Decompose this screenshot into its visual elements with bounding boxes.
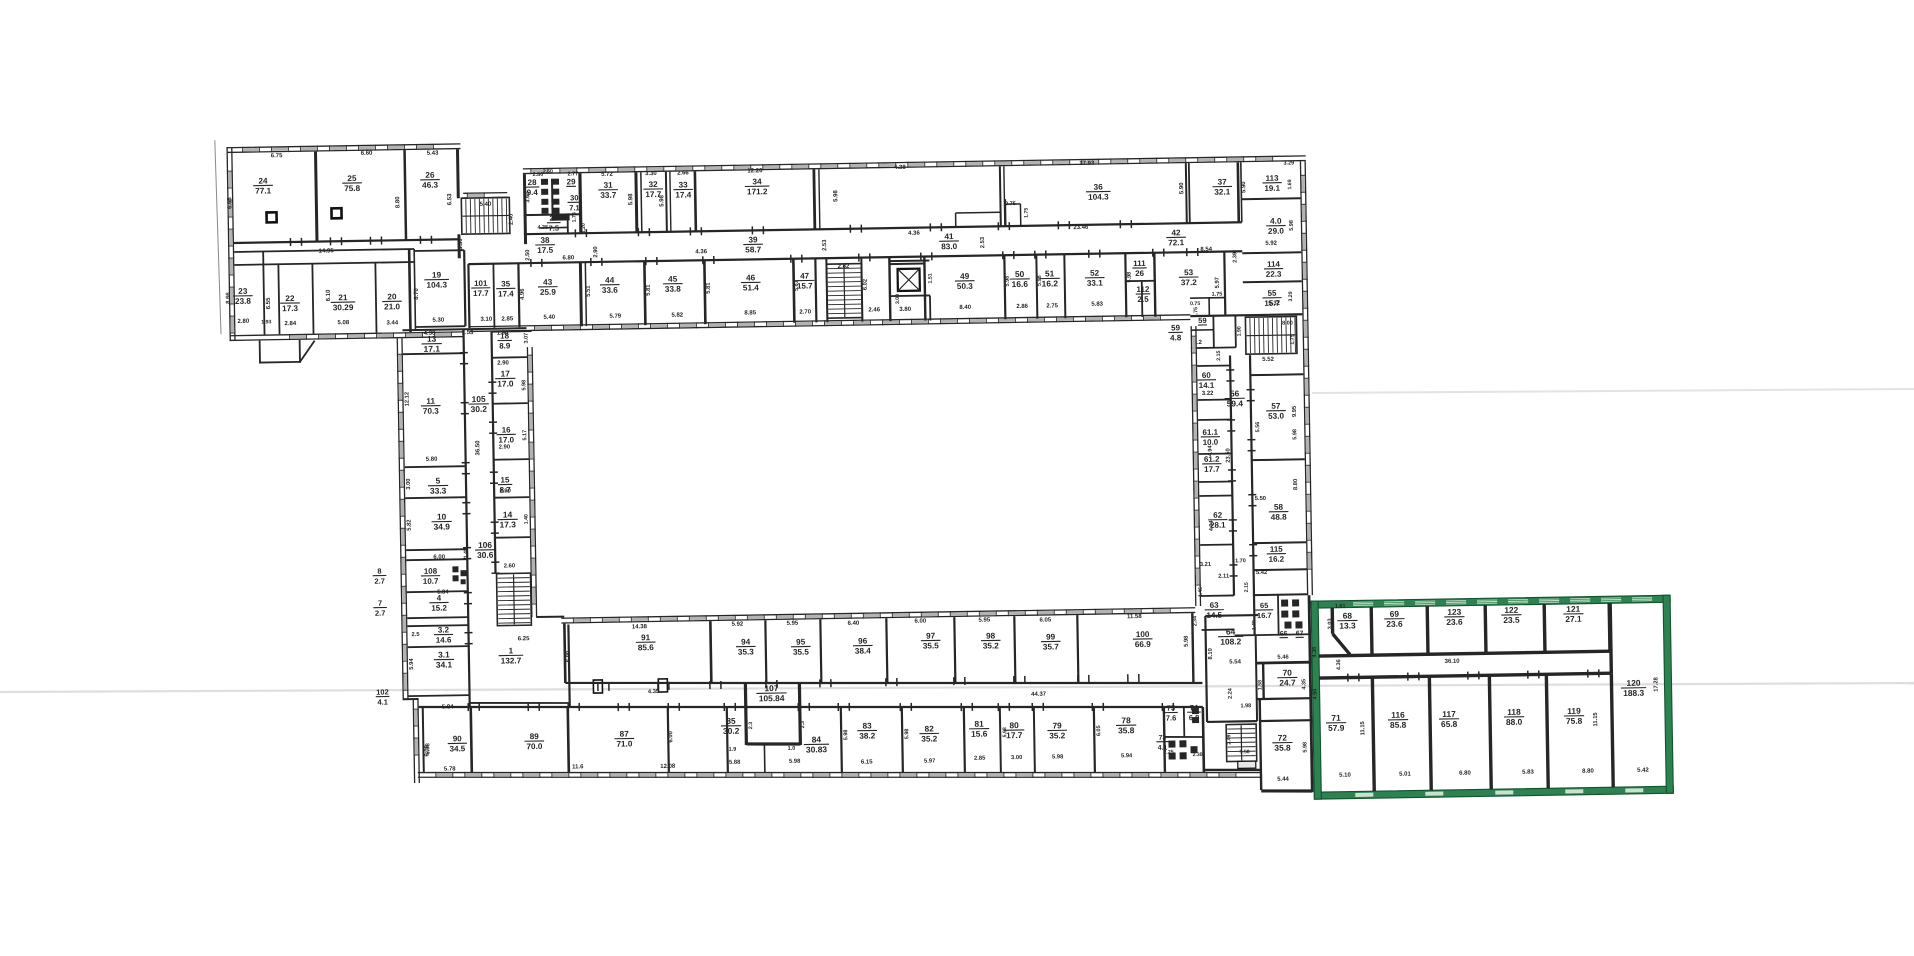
svg-text:85.8: 85.8 [1390, 720, 1407, 730]
svg-text:59: 59 [1198, 316, 1206, 325]
svg-text:5.92: 5.92 [732, 622, 744, 628]
svg-text:1.61: 1.61 [1335, 604, 1346, 610]
svg-text:2.5: 2.5 [1137, 295, 1149, 304]
svg-text:33.8: 33.8 [665, 285, 682, 294]
svg-text:2.90: 2.90 [593, 246, 599, 257]
svg-text:4.36: 4.36 [1312, 647, 1318, 658]
svg-text:4.36: 4.36 [908, 231, 920, 237]
svg-text:5.97: 5.97 [1215, 277, 1221, 288]
svg-text:3.00: 3.00 [895, 294, 901, 304]
svg-text:6.75: 6.75 [271, 153, 283, 159]
svg-text:17.1: 17.1 [424, 344, 441, 354]
svg-text:5.81: 5.81 [706, 282, 712, 294]
svg-text:188.3: 188.3 [1623, 688, 1644, 698]
svg-text:70.0: 70.0 [526, 742, 543, 751]
svg-text:30: 30 [570, 193, 578, 202]
svg-text:36.50: 36.50 [475, 440, 481, 456]
svg-text:30.83: 30.83 [806, 744, 827, 754]
svg-text:34: 34 [752, 177, 762, 186]
svg-text:4.94: 4.94 [1207, 444, 1213, 456]
svg-text:5.98: 5.98 [904, 728, 910, 739]
svg-text:33.3: 33.3 [430, 485, 447, 495]
svg-text:94: 94 [741, 637, 751, 646]
svg-text:98: 98 [986, 631, 996, 640]
svg-text:35.7: 35.7 [1043, 642, 1060, 651]
svg-text:8.80: 8.80 [1293, 479, 1299, 490]
svg-text:57: 57 [1271, 402, 1281, 411]
svg-text:5.40: 5.40 [543, 315, 555, 321]
svg-text:105.84: 105.84 [759, 693, 785, 703]
svg-text:5.42: 5.42 [1637, 768, 1649, 774]
svg-text:38.2: 38.2 [859, 731, 876, 740]
svg-text:23.5: 23.5 [1503, 615, 1520, 625]
svg-text:6.25: 6.25 [518, 636, 530, 642]
svg-text:83.0: 83.0 [941, 242, 958, 251]
svg-text:5.79: 5.79 [609, 314, 621, 320]
svg-text:17.7: 17.7 [473, 289, 489, 298]
svg-text:10.7: 10.7 [423, 577, 439, 586]
svg-text:2.11: 2.11 [1218, 574, 1230, 580]
svg-text:11.6: 11.6 [572, 764, 584, 770]
svg-text:17.3: 17.3 [282, 304, 299, 313]
svg-text:4.35: 4.35 [537, 225, 548, 231]
svg-text:5.10: 5.10 [1339, 773, 1351, 779]
svg-text:25.9: 25.9 [540, 288, 557, 297]
svg-text:96: 96 [858, 637, 868, 646]
svg-text:5.58: 5.58 [1239, 749, 1249, 755]
svg-text:23.6: 23.6 [1386, 619, 1403, 629]
svg-text:14.1: 14.1 [1199, 381, 1215, 390]
svg-text:5.90: 5.90 [1179, 182, 1185, 194]
svg-text:102: 102 [376, 687, 389, 696]
svg-text:8.70: 8.70 [414, 287, 420, 299]
svg-text:2.60: 2.60 [504, 563, 515, 569]
svg-text:104.3: 104.3 [1088, 192, 1109, 201]
svg-text:6.08: 6.08 [425, 742, 431, 754]
svg-text:2.90: 2.90 [499, 444, 510, 450]
svg-text:8.80: 8.80 [1582, 769, 1594, 775]
svg-text:171.2: 171.2 [747, 187, 768, 196]
svg-text:24.7: 24.7 [1279, 677, 1296, 687]
svg-text:2.53: 2.53 [822, 239, 828, 251]
svg-text:46.3: 46.3 [422, 181, 439, 190]
svg-text:2.30: 2.30 [1193, 752, 1203, 758]
svg-text:49: 49 [960, 272, 970, 281]
svg-text:3.22: 3.22 [1202, 391, 1214, 397]
svg-text:35.2: 35.2 [983, 641, 1000, 650]
svg-text:112: 112 [1136, 285, 1150, 294]
svg-text:29: 29 [567, 177, 577, 186]
svg-text:20: 20 [387, 292, 397, 301]
svg-text:4.94: 4.94 [1313, 688, 1319, 700]
svg-text:2.53: 2.53 [980, 236, 986, 248]
svg-text:5.40: 5.40 [480, 202, 492, 208]
svg-text:1: 1 [508, 646, 513, 655]
svg-text:13.3: 13.3 [1339, 620, 1356, 630]
svg-text:37.2: 37.2 [1181, 278, 1198, 287]
svg-text:17: 17 [500, 368, 510, 378]
svg-text:11.15: 11.15 [1360, 720, 1366, 735]
svg-text:71.0: 71.0 [616, 739, 633, 748]
svg-text:5.44: 5.44 [1277, 777, 1289, 783]
svg-text:8.10: 8.10 [1208, 648, 1214, 659]
svg-text:2.15: 2.15 [1244, 582, 1250, 592]
svg-text:132.7: 132.7 [501, 656, 522, 665]
svg-text:23.50: 23.50 [1226, 448, 1232, 463]
svg-text:3.29: 3.29 [1288, 291, 1294, 301]
svg-text:95: 95 [796, 638, 806, 647]
svg-text:5.46: 5.46 [1277, 655, 1289, 661]
svg-text:5.42: 5.42 [1256, 570, 1267, 576]
svg-text:5.83: 5.83 [1522, 769, 1534, 775]
svg-text:33: 33 [678, 180, 688, 189]
svg-text:33.6: 33.6 [602, 286, 619, 295]
svg-text:72: 72 [1278, 733, 1288, 743]
svg-text:83: 83 [862, 721, 872, 730]
svg-text:56: 56 [1230, 388, 1240, 398]
svg-text:6.00: 6.00 [914, 619, 926, 625]
svg-text:117: 117 [1442, 709, 1456, 719]
svg-text:120: 120 [1626, 678, 1640, 688]
svg-text:17.7: 17.7 [1006, 730, 1023, 740]
svg-text:23.6: 23.6 [1446, 617, 1463, 627]
svg-text:2.7: 2.7 [375, 609, 386, 618]
svg-text:8.80: 8.80 [395, 196, 401, 208]
svg-text:5.81: 5.81 [646, 284, 652, 296]
svg-text:5.80: 5.80 [426, 457, 438, 463]
svg-text:46: 46 [746, 273, 756, 282]
svg-text:104.3: 104.3 [426, 280, 447, 289]
svg-text:4.8: 4.8 [1170, 333, 1182, 342]
svg-text:89: 89 [530, 732, 540, 741]
svg-text:2.70: 2.70 [799, 309, 811, 315]
svg-text:35.8: 35.8 [1274, 743, 1291, 753]
svg-text:2.90: 2.90 [499, 488, 510, 494]
svg-text:1.40: 1.40 [1251, 620, 1257, 630]
svg-text:4.36: 4.36 [1336, 659, 1342, 670]
svg-text:64: 64 [1226, 626, 1236, 636]
svg-text:118: 118 [1507, 707, 1521, 717]
svg-text:5.51: 5.51 [586, 285, 592, 297]
svg-text:5.43: 5.43 [427, 151, 439, 157]
svg-text:34.9: 34.9 [433, 521, 450, 531]
svg-text:2.84: 2.84 [284, 321, 296, 327]
svg-text:3.60: 3.60 [525, 191, 531, 202]
svg-text:1.9: 1.9 [729, 747, 737, 753]
svg-text:5.98: 5.98 [789, 759, 801, 765]
svg-text:6.80: 6.80 [1459, 771, 1471, 777]
svg-text:6.15: 6.15 [861, 759, 873, 765]
svg-text:3.00: 3.00 [1011, 755, 1022, 761]
svg-text:44: 44 [605, 276, 615, 285]
svg-text:44.37: 44.37 [1031, 692, 1047, 698]
svg-text:5.98: 5.98 [1127, 272, 1133, 283]
svg-text:79: 79 [1052, 721, 1062, 730]
svg-text:3.03: 3.03 [1327, 618, 1333, 629]
svg-text:8.66: 8.66 [226, 292, 232, 304]
svg-text:1.46: 1.46 [1198, 587, 1204, 597]
svg-text:5.98: 5.98 [1184, 635, 1190, 647]
svg-text:5.98: 5.98 [1289, 220, 1295, 231]
svg-text:65.8: 65.8 [1441, 719, 1458, 729]
svg-text:35: 35 [501, 279, 511, 288]
svg-text:108: 108 [424, 567, 438, 576]
svg-text:51.4: 51.4 [743, 283, 760, 292]
svg-text:22.3: 22.3 [1266, 270, 1282, 279]
svg-text:24: 24 [258, 176, 268, 185]
svg-text:36: 36 [1094, 183, 1104, 192]
svg-text:35.3: 35.3 [738, 647, 755, 656]
svg-text:121: 121 [1566, 604, 1580, 614]
svg-text:53.0: 53.0 [1268, 412, 1285, 421]
svg-text:19.1: 19.1 [1264, 184, 1280, 193]
svg-text:77.1: 77.1 [255, 186, 272, 195]
svg-text:35.2: 35.2 [921, 734, 938, 743]
svg-text:6.05: 6.05 [1039, 617, 1051, 623]
svg-text:37: 37 [1218, 178, 1228, 187]
svg-text:8.54: 8.54 [1200, 247, 1212, 253]
svg-text:15: 15 [500, 475, 510, 484]
svg-text:35.5: 35.5 [793, 648, 810, 657]
svg-text:28: 28 [528, 178, 538, 187]
svg-text:75.8: 75.8 [344, 184, 361, 193]
svg-text:5.92: 5.92 [1265, 241, 1277, 247]
svg-text:43: 43 [543, 278, 553, 287]
svg-text:3.07: 3.07 [524, 333, 530, 344]
svg-text:1.0: 1.0 [788, 746, 796, 752]
svg-text:11.58: 11.58 [1127, 614, 1142, 620]
svg-text:67: 67 [1296, 630, 1304, 637]
svg-text:61.1: 61.1 [1202, 428, 1218, 437]
svg-text:2.85: 2.85 [974, 756, 986, 762]
svg-text:5.72: 5.72 [601, 172, 613, 178]
svg-text:85: 85 [726, 716, 736, 726]
svg-text:32: 32 [648, 180, 658, 189]
svg-text:3.29: 3.29 [1283, 160, 1294, 166]
svg-text:5.98: 5.98 [843, 729, 849, 740]
svg-text:17.7: 17.7 [1204, 465, 1220, 474]
svg-text:3.30: 3.30 [645, 171, 657, 177]
svg-text:78: 78 [1121, 715, 1131, 725]
svg-text:1.69: 1.69 [1287, 179, 1293, 189]
svg-text:17.0: 17.0 [498, 435, 514, 444]
svg-text:14.38: 14.38 [632, 624, 648, 630]
svg-text:42: 42 [1171, 228, 1181, 237]
svg-text:122: 122 [1504, 605, 1518, 615]
svg-text:82: 82 [925, 724, 935, 733]
svg-text:2.24: 2.24 [1228, 687, 1234, 699]
svg-text:116: 116 [1391, 710, 1405, 720]
svg-text:47: 47 [800, 271, 810, 280]
svg-text:4.0: 4.0 [1270, 217, 1282, 226]
svg-text:2.3: 2.3 [748, 722, 754, 729]
svg-text:1.75: 1.75 [1290, 334, 1296, 345]
svg-text:5.17: 5.17 [522, 430, 528, 441]
svg-text:123: 123 [1447, 607, 1461, 617]
svg-text:14.95: 14.95 [319, 248, 335, 254]
svg-text:22: 22 [285, 294, 295, 303]
svg-text:12.20: 12.20 [747, 168, 763, 174]
svg-text:62: 62 [1213, 511, 1223, 520]
svg-text:32.1: 32.1 [1214, 187, 1231, 196]
svg-text:2.82: 2.82 [838, 264, 850, 270]
svg-text:5.98: 5.98 [659, 194, 665, 206]
svg-text:87: 87 [620, 730, 630, 739]
svg-text:3.00: 3.00 [406, 478, 412, 489]
svg-text:4.36: 4.36 [424, 331, 436, 337]
svg-text:5.98: 5.98 [1002, 727, 1008, 737]
svg-text:66: 66 [1280, 631, 1288, 638]
svg-text:27: 27 [549, 214, 557, 223]
svg-text:57.9: 57.9 [1328, 723, 1345, 733]
svg-text:16.2: 16.2 [1042, 278, 1059, 288]
svg-text:81: 81 [974, 719, 984, 729]
svg-text:3.21: 3.21 [1200, 562, 1212, 568]
svg-text:63: 63 [1210, 601, 1220, 610]
svg-text:65: 65 [1260, 601, 1268, 610]
svg-text:3.1: 3.1 [438, 649, 450, 659]
svg-text:69: 69 [1390, 609, 1400, 619]
svg-text:4.1: 4.1 [1158, 745, 1168, 752]
svg-text:6.80: 6.80 [562, 255, 574, 261]
svg-text:5.78: 5.78 [444, 766, 456, 772]
svg-text:41: 41 [944, 232, 954, 241]
svg-text:1.75: 1.75 [1212, 292, 1223, 298]
svg-text:5.98: 5.98 [1292, 429, 1298, 440]
svg-text:1.75: 1.75 [1024, 208, 1030, 218]
svg-text:97: 97 [926, 631, 936, 640]
svg-text:2.39: 2.39 [1232, 252, 1238, 263]
svg-text:6.00: 6.00 [566, 651, 572, 662]
svg-text:5.98: 5.98 [1005, 276, 1011, 287]
svg-text:5.98: 5.98 [833, 189, 839, 201]
svg-text:1.70: 1.70 [1235, 558, 1246, 564]
svg-text:1.90: 1.90 [497, 330, 509, 336]
svg-text:75.8: 75.8 [1566, 716, 1583, 726]
svg-text:4.1: 4.1 [377, 698, 388, 707]
svg-text:3.30: 3.30 [458, 239, 464, 250]
svg-text:2.60: 2.60 [543, 169, 553, 175]
svg-text:16.7: 16.7 [1257, 611, 1272, 620]
svg-text:0.75: 0.75 [1190, 301, 1200, 307]
svg-text:30.2: 30.2 [723, 726, 740, 736]
svg-text:73: 73 [1159, 735, 1167, 742]
svg-text:15.6: 15.6 [971, 729, 988, 739]
svg-text:91: 91 [641, 633, 651, 642]
svg-text:5.98: 5.98 [1037, 275, 1043, 286]
svg-text:45: 45 [668, 275, 678, 284]
svg-text:6.00: 6.00 [433, 555, 445, 561]
svg-text:17.4: 17.4 [498, 289, 514, 298]
svg-text:60: 60 [1202, 371, 1212, 380]
svg-text:36.10: 36.10 [1445, 659, 1461, 665]
svg-text:7.1: 7.1 [569, 203, 580, 212]
svg-text:35.2: 35.2 [1049, 731, 1066, 740]
svg-text:2.7: 2.7 [374, 577, 385, 586]
svg-text:15.2: 15.2 [431, 604, 447, 613]
svg-text:115: 115 [1270, 545, 1284, 554]
svg-text:4.38: 4.38 [894, 165, 906, 171]
svg-text:5.95: 5.95 [787, 621, 799, 627]
svg-text:31: 31 [603, 181, 613, 190]
svg-text:2.86: 2.86 [1016, 304, 1028, 310]
svg-text:5.32: 5.32 [1268, 301, 1280, 307]
svg-text:1.58: 1.58 [1257, 680, 1263, 690]
svg-text:2.46: 2.46 [868, 307, 880, 313]
svg-text:66.9: 66.9 [1135, 640, 1152, 649]
svg-text:12.08: 12.08 [660, 764, 676, 770]
svg-text:6.05: 6.05 [1096, 725, 1102, 736]
svg-text:5.88: 5.88 [729, 760, 741, 766]
svg-text:14: 14 [503, 509, 513, 519]
svg-text:1.90: 1.90 [1237, 326, 1243, 336]
svg-text:2.75: 2.75 [1046, 303, 1058, 309]
svg-text:5.50: 5.50 [1255, 496, 1266, 502]
svg-text:4.96: 4.96 [520, 288, 526, 300]
svg-text:14.6: 14.6 [436, 635, 452, 644]
svg-text:5.94: 5.94 [409, 658, 415, 670]
svg-text:7.6: 7.6 [1166, 713, 1177, 722]
svg-text:84: 84 [812, 734, 822, 744]
svg-text:1.40: 1.40 [524, 514, 530, 524]
svg-text:8.00: 8.00 [1282, 320, 1293, 326]
svg-text:2.85: 2.85 [501, 316, 513, 322]
svg-text:5.01: 5.01 [1399, 772, 1411, 778]
svg-text:23.8: 23.8 [235, 297, 252, 306]
svg-text:26: 26 [425, 171, 435, 180]
svg-text:5.98: 5.98 [628, 193, 634, 205]
svg-text:2.40: 2.40 [509, 214, 515, 225]
svg-text:59.4: 59.4 [1227, 398, 1244, 408]
svg-text:5.30: 5.30 [432, 318, 444, 324]
svg-text:8.85: 8.85 [744, 310, 756, 316]
svg-text:5.83: 5.83 [1091, 302, 1103, 308]
svg-text:4.94: 4.94 [1209, 519, 1215, 531]
svg-text:55: 55 [1267, 289, 1277, 298]
svg-text:5.54: 5.54 [1229, 659, 1241, 665]
svg-text:71: 71 [1331, 713, 1341, 723]
svg-text:6.10: 6.10 [326, 289, 332, 301]
svg-text:6.00: 6.00 [668, 731, 674, 742]
svg-text:50.3: 50.3 [957, 282, 974, 291]
svg-text:26: 26 [1135, 269, 1145, 278]
svg-text:3.2: 3.2 [438, 625, 450, 634]
svg-text:114: 114 [1267, 260, 1281, 269]
svg-text:59: 59 [1171, 323, 1181, 332]
svg-text:3.80: 3.80 [899, 307, 911, 313]
svg-text:2.3: 2.3 [800, 721, 806, 728]
svg-text:58: 58 [1274, 503, 1284, 512]
svg-text:5.95: 5.95 [978, 617, 990, 623]
svg-text:5.97: 5.97 [924, 758, 935, 764]
svg-text:70: 70 [1283, 668, 1293, 678]
svg-text:17.4: 17.4 [675, 190, 692, 199]
svg-text:25: 25 [347, 174, 357, 183]
svg-text:101: 101 [474, 279, 488, 288]
svg-text:11: 11 [426, 397, 435, 406]
svg-text:2.90: 2.90 [497, 360, 509, 366]
svg-text:8: 8 [377, 567, 381, 576]
svg-text:58.7: 58.7 [745, 245, 762, 254]
svg-text:10: 10 [437, 512, 447, 522]
svg-text:17.3: 17.3 [499, 519, 516, 529]
svg-text:6.8: 6.8 [1189, 713, 1200, 722]
svg-text:1.48: 1.48 [463, 548, 469, 558]
svg-text:100: 100 [1136, 630, 1150, 639]
svg-text:85.6: 85.6 [638, 643, 655, 652]
svg-text:48.8: 48.8 [1271, 513, 1288, 522]
svg-text:5.98: 5.98 [1052, 754, 1064, 760]
